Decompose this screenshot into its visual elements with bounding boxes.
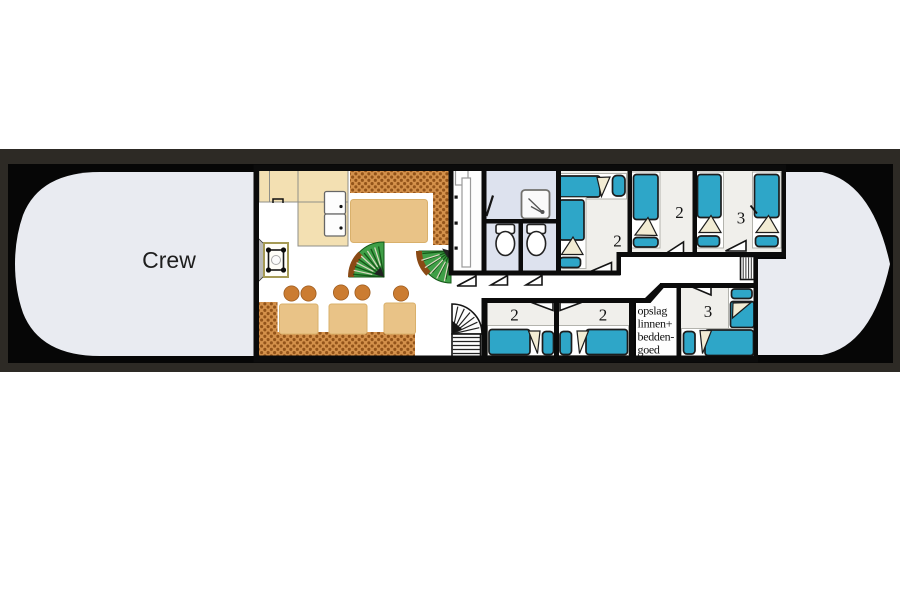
svg-text:3: 3 — [737, 209, 746, 228]
svg-text:bedden-: bedden- — [638, 330, 675, 344]
svg-text:goed: goed — [638, 343, 660, 357]
svg-text:2: 2 — [613, 232, 622, 251]
svg-text:opslag: opslag — [638, 304, 668, 318]
svg-text:3: 3 — [704, 302, 713, 321]
svg-text:2: 2 — [510, 306, 519, 325]
svg-text:2: 2 — [599, 306, 608, 325]
svg-text:Crew: Crew — [142, 247, 196, 273]
svg-text:linnen+: linnen+ — [638, 317, 673, 331]
svg-text:2: 2 — [675, 203, 684, 222]
